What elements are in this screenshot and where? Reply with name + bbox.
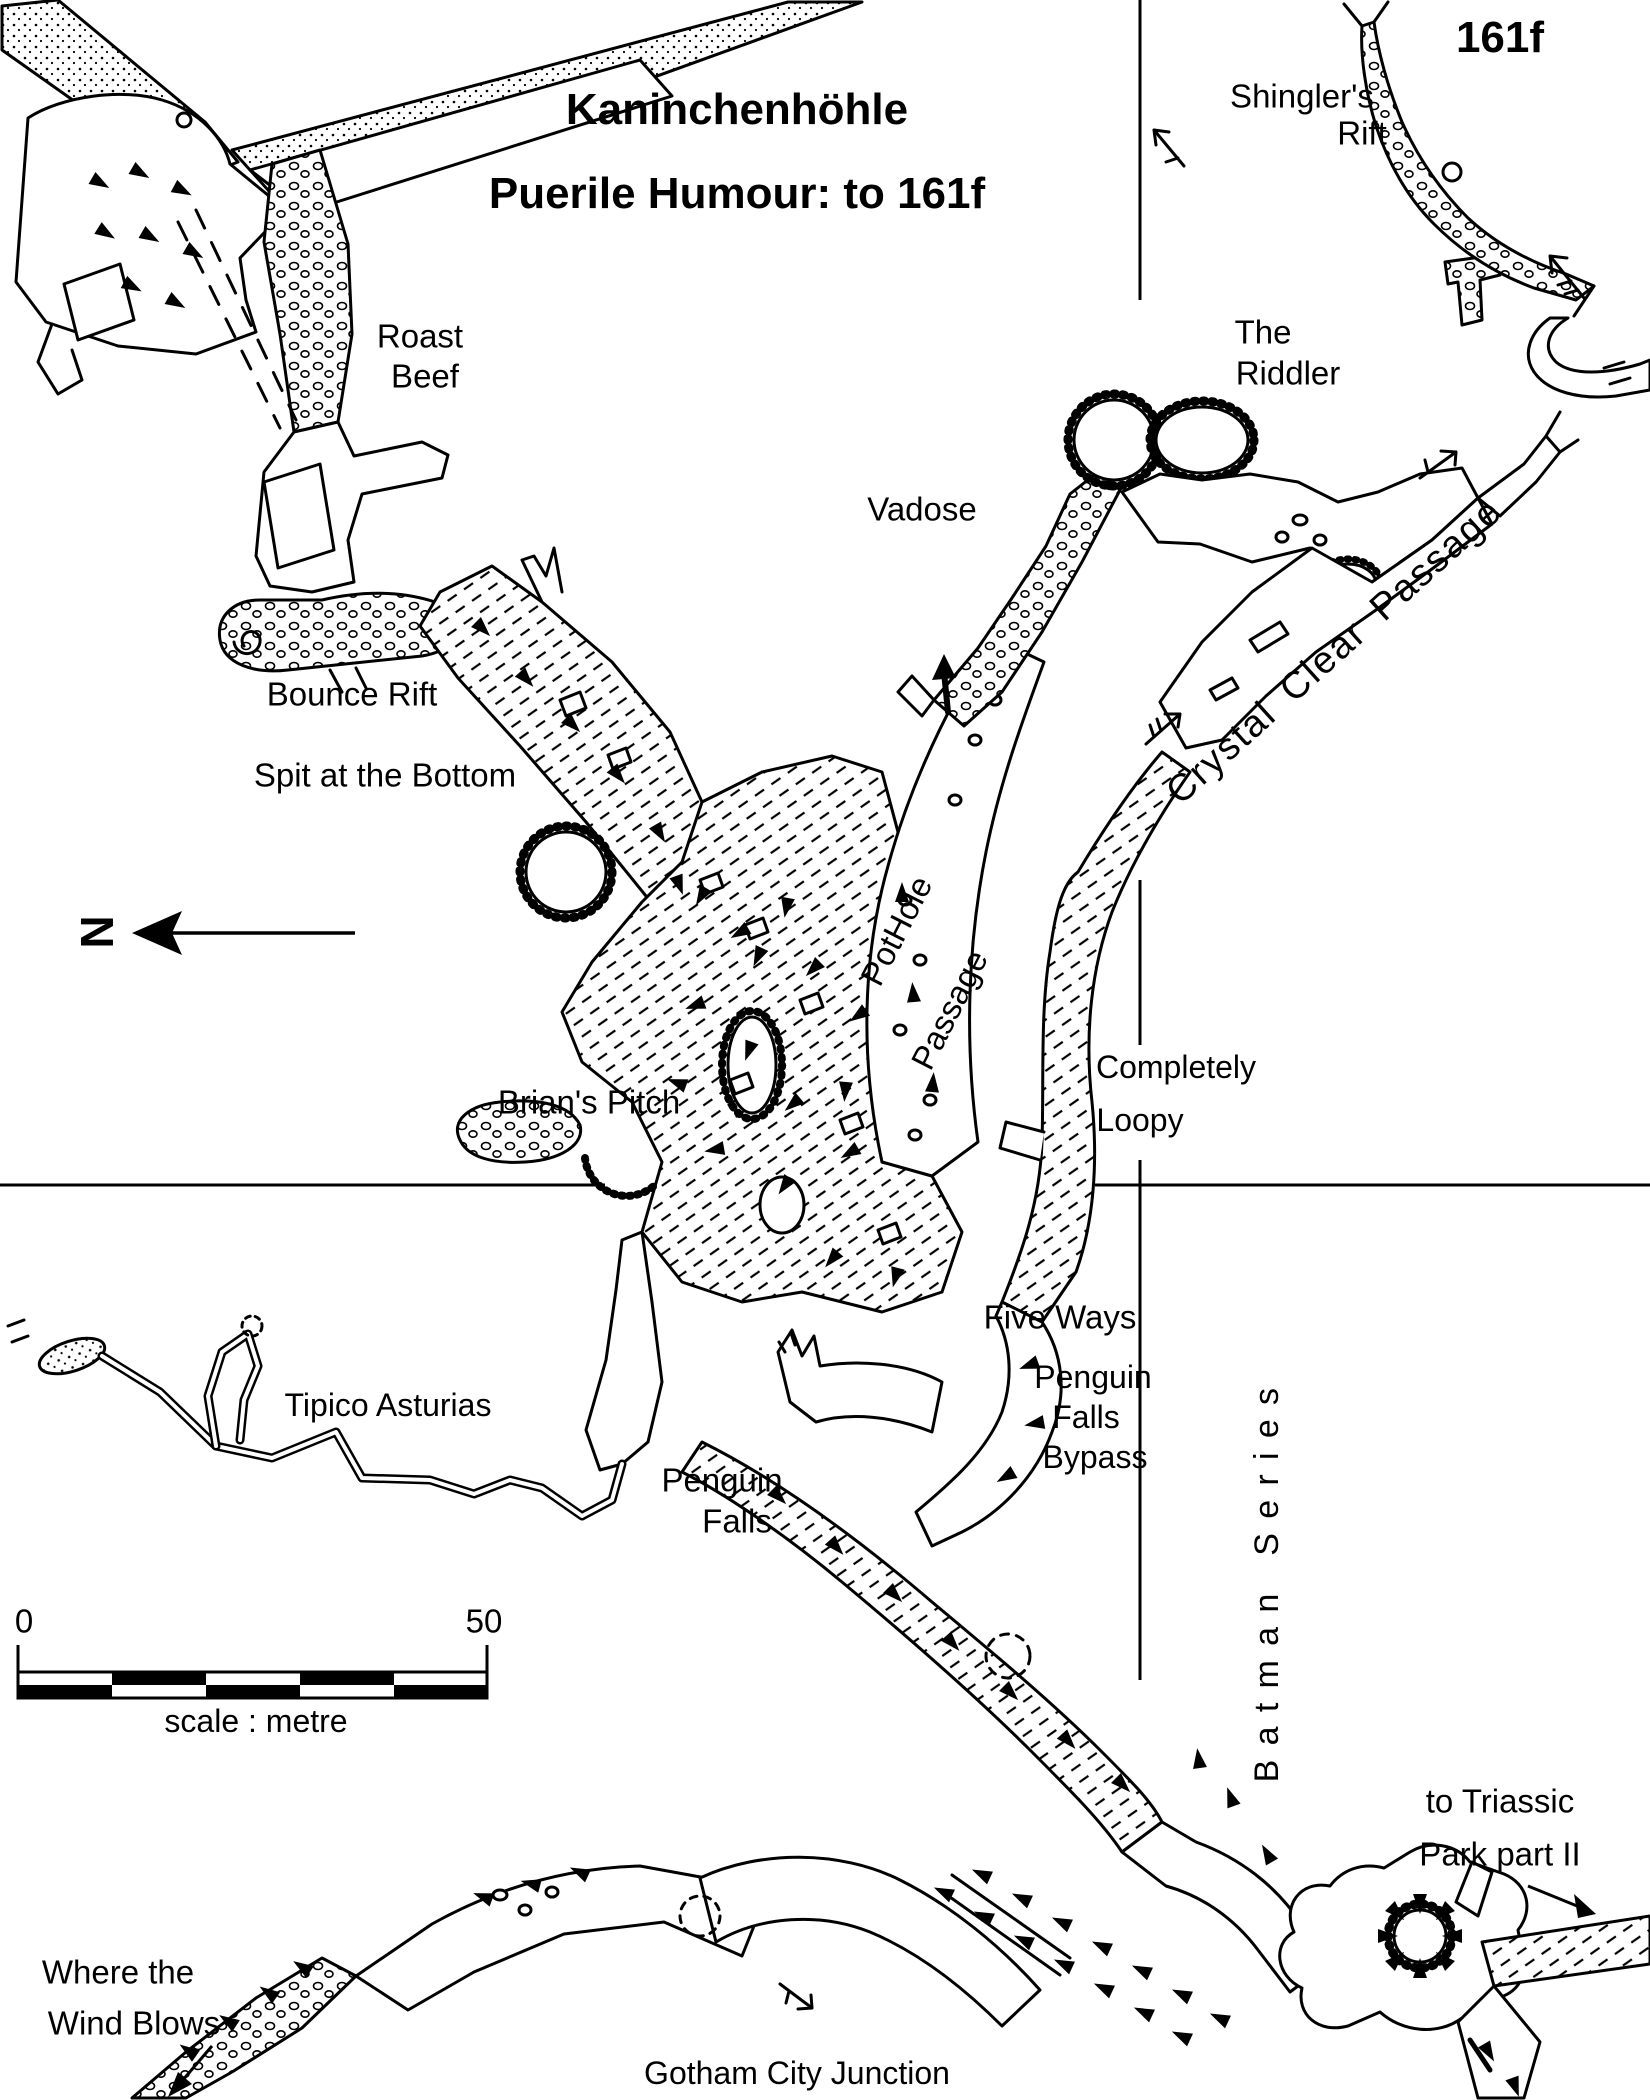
label-tipico-asturias: Tipico Asturias xyxy=(285,1389,492,1423)
label-to-triassic-park-2: Park part II xyxy=(1419,1838,1580,1873)
label-batman-series: Batman Series xyxy=(1250,1374,1286,1783)
cave-linework xyxy=(0,0,1650,2100)
label-completely-loopy-2: Loopy xyxy=(1096,1104,1183,1138)
label-the-riddler-1: The xyxy=(1235,316,1292,351)
station-label-161f: 161f xyxy=(1456,15,1544,61)
cave-survey-map: Kaninchenhöhle Puerile Humour: to 161f 1… xyxy=(0,0,1650,2100)
label-the-riddler-2: Riddler xyxy=(1236,357,1341,392)
label-roast-beef-2: Beef xyxy=(391,360,459,395)
north-arrow-icon xyxy=(132,911,355,955)
north-letter: N xyxy=(73,915,121,948)
scale-end-label: 50 xyxy=(466,1605,503,1640)
label-completely-loopy-1: Completely xyxy=(1096,1051,1256,1085)
label-where-the-wind-blows-2: Wind Blows xyxy=(48,2007,220,2042)
label-shinglers-rift-2: Rift xyxy=(1337,117,1387,152)
map-title-line2: Puerile Humour: to 161f xyxy=(489,171,985,217)
scale-start-label: 0 xyxy=(15,1605,33,1640)
label-roast-beef-1: Roast xyxy=(377,320,463,355)
label-penguin-falls-bypass-3: Bypass xyxy=(1043,1441,1148,1475)
label-five-ways: Five Ways xyxy=(984,1301,1137,1336)
label-penguin-falls-bypass-1: Penguin xyxy=(1034,1361,1151,1395)
label-gotham-city-junction: Gotham City Junction xyxy=(644,2057,950,2091)
label-brians-pitch: Brian's Pitch xyxy=(498,1086,680,1121)
label-vadose: Vadose xyxy=(867,493,976,528)
label-to-triassic-park-1: to Triassic xyxy=(1426,1785,1575,1820)
map-title-line1: Kaninchenhöhle xyxy=(566,87,908,133)
label-bounce-rift: Bounce Rift xyxy=(267,678,438,713)
scale-caption: scale : metre xyxy=(164,1705,347,1739)
label-where-the-wind-blows-1: Where the xyxy=(42,1956,194,1991)
label-spit-at-the-bottom: Spit at the Bottom xyxy=(254,759,516,794)
label-penguin-falls-2: Falls xyxy=(702,1505,772,1540)
label-penguin-falls-bypass-2: Falls xyxy=(1052,1401,1120,1435)
label-shinglers-rift-1: Shingler's xyxy=(1230,80,1374,115)
scale-bar xyxy=(18,1645,487,1698)
label-penguin-falls-1: Penguin xyxy=(661,1464,782,1499)
